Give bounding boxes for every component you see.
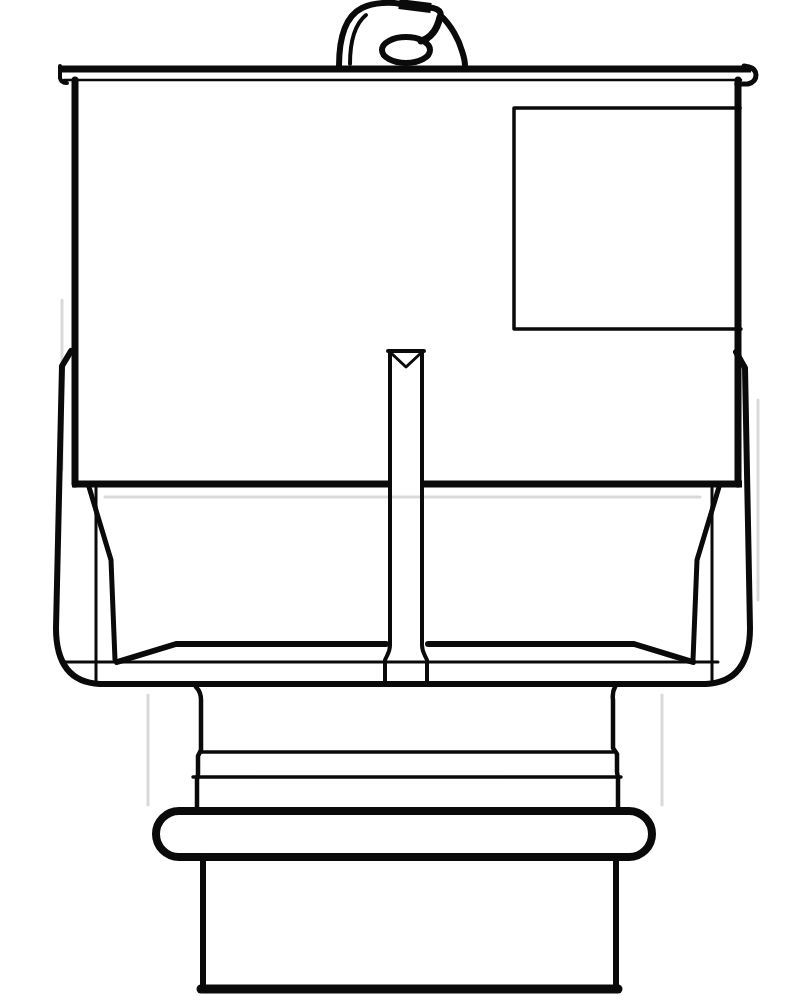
lid-flange bbox=[59, 66, 756, 84]
neck-left-wall bbox=[196, 687, 201, 811]
lower-skirt bbox=[56, 351, 750, 684]
skirt-outer-shell bbox=[56, 351, 750, 684]
skirt-inner-wall-right bbox=[693, 487, 719, 660]
rib-right-edge bbox=[422, 351, 427, 684]
skirt-inner-wall-left bbox=[89, 487, 115, 660]
retaining-clip bbox=[339, 3, 465, 66]
clip-eye-hole bbox=[382, 37, 430, 63]
neck bbox=[193, 687, 621, 811]
clip-inner-edge bbox=[350, 15, 366, 64]
rib-left-edge bbox=[385, 351, 390, 684]
label-panel bbox=[514, 108, 741, 329]
center-rib bbox=[385, 351, 427, 684]
neck-right-wall bbox=[613, 687, 618, 811]
rib-v-notch bbox=[391, 353, 421, 367]
floor-pan-right bbox=[428, 644, 693, 662]
clip-curl bbox=[421, 17, 440, 41]
floor-pan-left bbox=[117, 644, 386, 662]
scan-artifacts bbox=[62, 300, 758, 805]
o-ring-capsule bbox=[156, 811, 652, 857]
technical-drawing bbox=[0, 0, 801, 1000]
clip-top-reinforcement bbox=[399, 4, 431, 8]
bottom-spigot bbox=[201, 857, 618, 989]
drawing-stage bbox=[0, 0, 801, 1000]
o-ring bbox=[156, 811, 652, 857]
housing-body bbox=[72, 80, 742, 484]
